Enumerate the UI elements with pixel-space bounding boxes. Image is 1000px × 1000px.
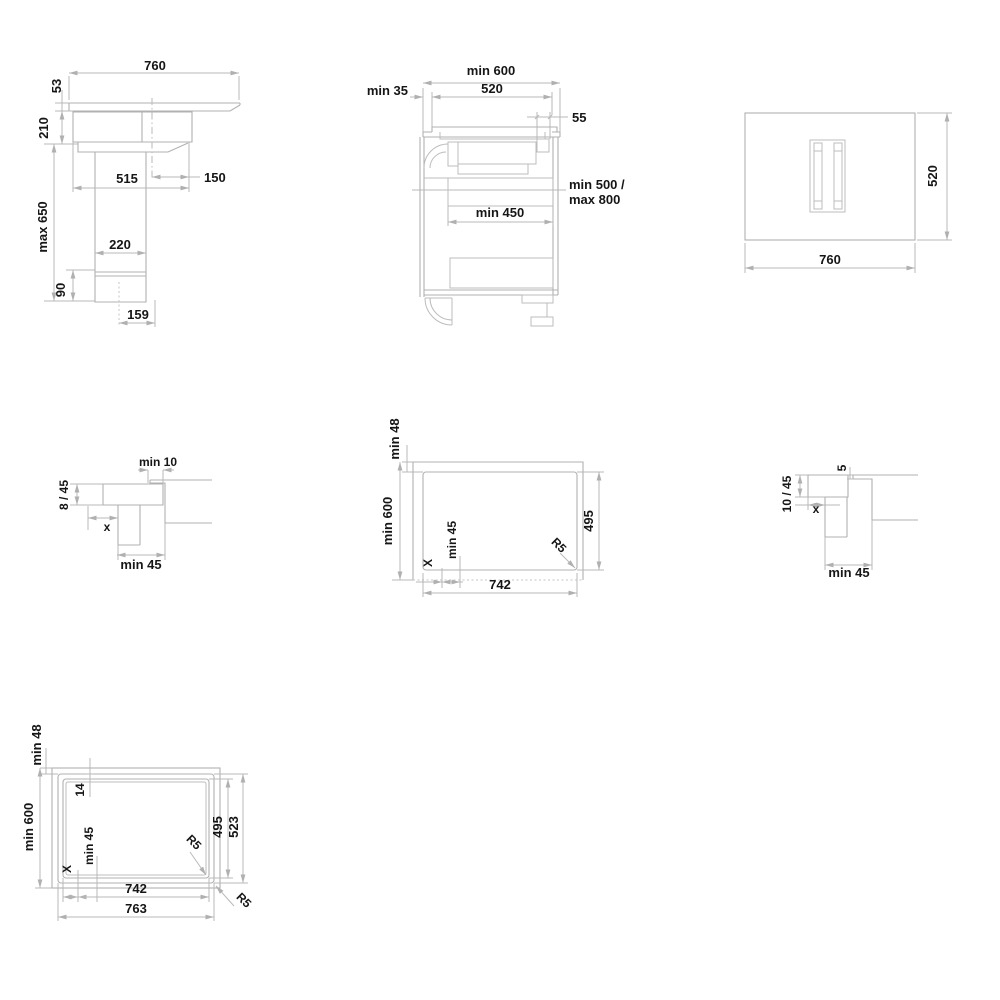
label-height: 10 / 45 (780, 475, 794, 512)
duct-elbow (424, 144, 448, 168)
extractor-box (458, 142, 536, 164)
extension-lines (795, 467, 872, 570)
label-depth: 520 (925, 165, 940, 187)
label-rear-clearance: min 48 (29, 724, 44, 765)
label-inner-depth: 495 (210, 816, 225, 838)
extension-lines (745, 113, 952, 273)
view-edge-detail-surface: min 10 8 / 45 x min 45 (57, 455, 212, 572)
extension-lines (392, 445, 604, 597)
drawing-svg: 760 53 210 max 650 90 515 150 220 159 (0, 0, 1000, 1000)
cabinet-front-panel (420, 137, 424, 297)
label-hob-depth: 520 (481, 81, 503, 96)
label-interior-depth: min 450 (476, 205, 524, 220)
hob-rear-strip (537, 139, 549, 152)
label-outlet-w: 159 (127, 307, 149, 322)
label-outer-depth: 523 (226, 816, 241, 838)
label-radius-inner: R5 (183, 832, 204, 853)
label-duct-max: max 650 (35, 201, 50, 252)
label-width: 760 (144, 58, 166, 73)
label-outlet-h: 90 (53, 283, 68, 297)
label-height: 8 / 45 (57, 480, 71, 510)
radius-inner-leader (190, 852, 206, 875)
label-x: X (421, 559, 435, 567)
label-side-clearance: min 45 (82, 827, 96, 865)
label-width: 760 (819, 252, 841, 267)
label-x: x (813, 502, 820, 516)
label-cutout-depth: 495 (581, 510, 596, 532)
radius-leader (560, 553, 575, 568)
label-glass-h: 53 (49, 79, 64, 93)
extractor-housing (73, 112, 192, 142)
label-clearance: min 45 (120, 557, 161, 572)
drawer-upper (448, 178, 553, 206)
hob-glass-profile (69, 103, 240, 111)
view-cabinet-side: min 600 520 min 35 55 min 500 / max 800 … (367, 63, 625, 326)
label-front-clearance: min 35 (367, 83, 408, 98)
label-duct-w: 220 (109, 237, 131, 252)
adjustable-foot (522, 295, 553, 326)
view-hob-duct-side: 760 53 210 max 650 90 515 150 220 159 (35, 58, 240, 327)
view-flush-cutout-top: min 48 min 600 14 X min 45 R5 R5 742 763… (21, 724, 254, 921)
plinth-curve (425, 298, 452, 325)
view-hob-top: 520 760 (745, 113, 952, 273)
label-offset: 150 (204, 170, 226, 185)
worktop-outline (413, 462, 583, 580)
label-x: x (104, 520, 111, 534)
hob-pan (440, 132, 545, 139)
label-rebate: 14 (73, 783, 87, 797)
label-outlet-range-2: max 800 (569, 192, 620, 207)
label-step: 5 (835, 464, 849, 471)
vent-grille (810, 140, 845, 212)
worktop-edge-section (150, 480, 212, 523)
worktop-section (423, 132, 560, 137)
hob-body-section (808, 475, 848, 497)
drawer-lower (450, 258, 553, 288)
label-side-clearance: min 45 (445, 521, 459, 559)
label-inner-width: 742 (125, 881, 147, 896)
label-gap: min 10 (139, 455, 177, 469)
worktop-edge-section (853, 475, 918, 520)
duct-section (825, 497, 847, 537)
label-x: X (60, 865, 74, 873)
label-worktop-depth: min 600 (380, 497, 395, 545)
label-radius-outer: R5 (233, 890, 254, 911)
hob-outline-top (745, 113, 915, 240)
label-cutout-width: 742 (489, 577, 511, 592)
duct-connector (448, 142, 458, 166)
view-edge-detail-flush: 5 10 / 45 x min 45 (780, 464, 918, 580)
label-radius: R5 (548, 535, 569, 556)
label-rear-clearance: min 48 (387, 418, 402, 459)
radius-outer-leader (216, 886, 234, 906)
hob-body-section (103, 484, 163, 505)
label-body-w: 515 (116, 171, 138, 186)
duct-section (118, 505, 140, 545)
installation-drawing-sheet: 760 53 210 max 650 90 515 150 220 159 (0, 0, 1000, 1000)
view-cutout-top: min 48 min 600 X min 45 R5 495 742 (380, 418, 604, 597)
motor-tray (458, 164, 528, 174)
hob-glass (432, 127, 557, 132)
cabinet-bottom (424, 290, 558, 295)
label-clearance: min 45 (828, 565, 869, 580)
label-worktop-depth: min 600 (467, 63, 515, 78)
label-worktop-depth: min 600 (21, 803, 36, 851)
label-outer-width: 763 (125, 901, 147, 916)
label-rear-section: 55 (572, 110, 586, 125)
cabinet-back-wall (553, 137, 558, 295)
label-housing-h: 210 (36, 117, 51, 139)
label-outlet-range-1: min 500 / (569, 177, 625, 192)
transition-tray (78, 142, 188, 152)
